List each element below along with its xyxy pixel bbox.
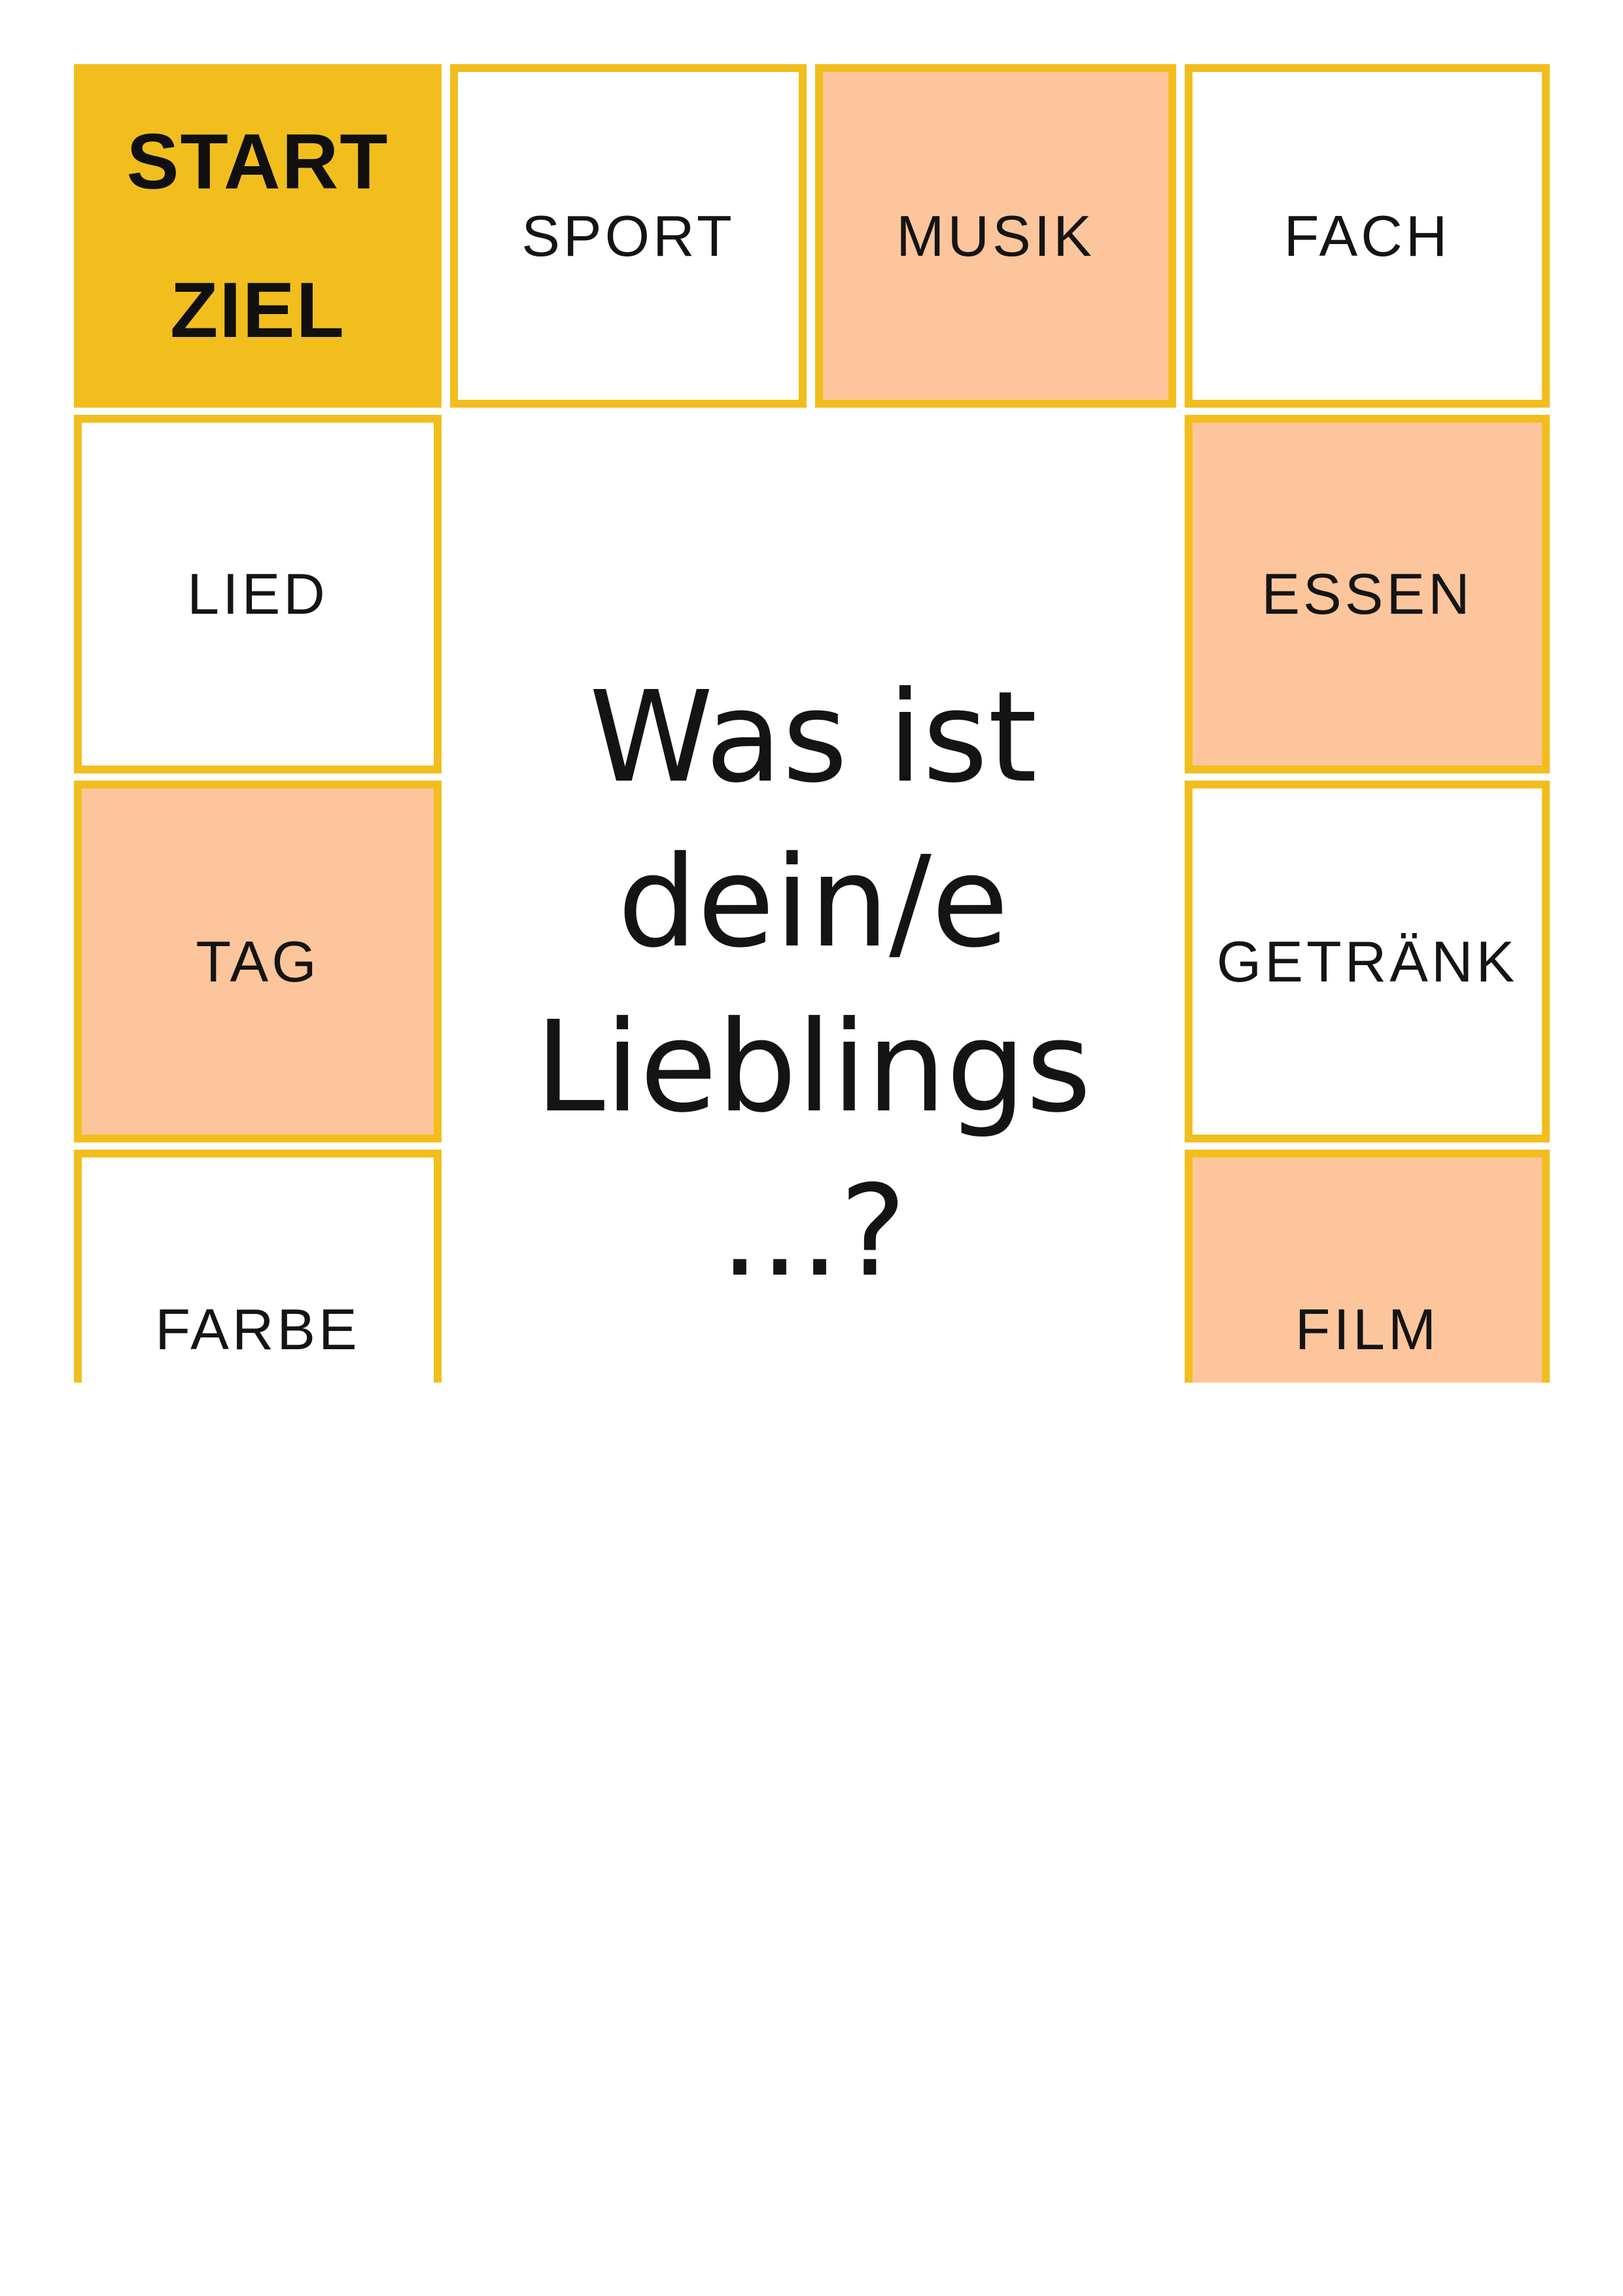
tile-label-getraenk: GETRÄNK <box>1217 928 1518 995</box>
tile-fach: FACH <box>1185 64 1550 408</box>
tile-start-ziel: START ZIEL <box>74 64 442 408</box>
question-text: Was ist dein/e Lieblings ...? <box>450 415 1176 1383</box>
tile-label-lied: LIED <box>187 561 328 627</box>
tile-label-fach: FACH <box>1284 203 1451 270</box>
start-label: START <box>126 118 389 205</box>
ziel-label: ZIEL <box>170 267 345 353</box>
tile-lied: LIED <box>74 415 442 773</box>
tile-tag: TAG <box>74 781 442 1142</box>
game-board: START ZIEL SPORT MUSIK FACH LIED ESSEN T… <box>74 64 1550 1383</box>
tile-label-tag: TAG <box>196 928 319 995</box>
question-line-1: Was ist <box>589 656 1038 821</box>
tile-getraenk: GETRÄNK <box>1185 781 1550 1142</box>
tile-label-sport: SPORT <box>521 203 735 270</box>
tile-sport: SPORT <box>450 64 807 408</box>
tile-label-film: FILM <box>1295 1296 1439 1363</box>
tile-label-essen: ESSEN <box>1261 561 1473 627</box>
tile-label-musik: MUSIK <box>896 203 1095 270</box>
tile-essen: ESSEN <box>1185 415 1550 773</box>
tile-label-farbe: FARBE <box>155 1296 360 1363</box>
tile-farbe: FARBE <box>74 1150 442 1383</box>
page: { "colors":{ "yellow":"#F2BE1E", "peach"… <box>0 0 1623 2296</box>
question-line-4: ...? <box>720 1150 907 1315</box>
question-line-2: dein/e <box>618 821 1009 985</box>
question-line-3: Lieblings <box>535 985 1092 1150</box>
tile-film: FILM <box>1185 1150 1550 1383</box>
tile-musik: MUSIK <box>815 64 1176 408</box>
